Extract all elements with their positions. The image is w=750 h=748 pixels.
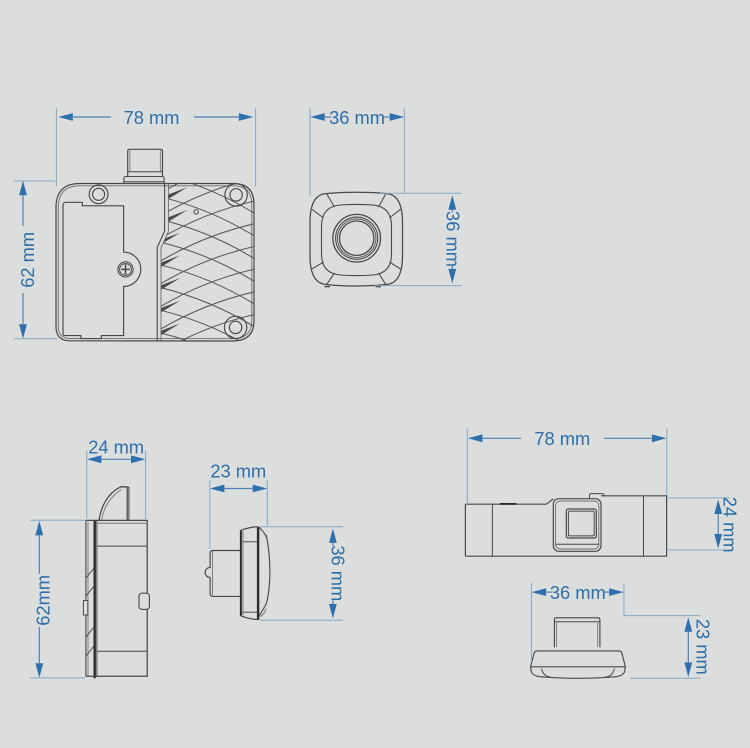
svg-text:36 mm: 36 mm xyxy=(442,211,463,267)
svg-text:36 mm: 36 mm xyxy=(328,545,349,601)
svg-text:23 mm: 23 mm xyxy=(692,619,713,675)
svg-text:24 mm: 24 mm xyxy=(88,437,144,458)
svg-text:36 mm: 36 mm xyxy=(329,107,385,128)
svg-text:62mm: 62mm xyxy=(33,575,54,626)
svg-text:36 mm: 36 mm xyxy=(550,582,606,603)
svg-text:78 mm: 78 mm xyxy=(124,107,180,128)
svg-text:23 mm: 23 mm xyxy=(210,461,266,482)
svg-text:24 mm: 24 mm xyxy=(720,497,741,553)
svg-text:62 mm: 62 mm xyxy=(17,232,38,288)
svg-text:78 mm: 78 mm xyxy=(534,428,590,449)
